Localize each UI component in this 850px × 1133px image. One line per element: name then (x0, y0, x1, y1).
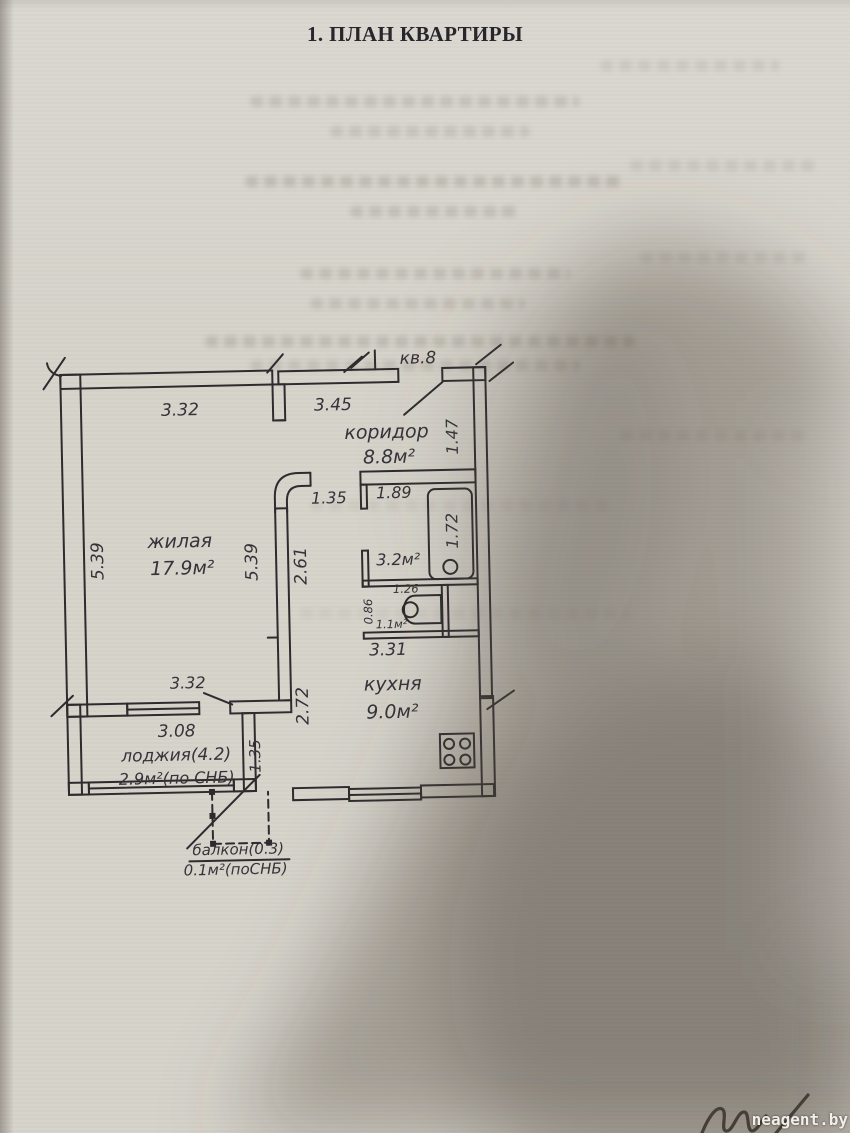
stove-burner (460, 738, 470, 748)
partition-wall (287, 486, 312, 512)
dim-kitchen-width: 3.31 (369, 640, 407, 661)
page-title: 1. ПЛАН КВАРТИРЫ (0, 22, 830, 47)
dim-wc-width: 1.26 (393, 582, 419, 597)
wall-segment (442, 585, 449, 637)
wall-break-mark (476, 345, 501, 365)
kitchen-window (349, 794, 421, 796)
dim-bath-depth: 1.72 (442, 513, 462, 549)
wall-segment (67, 705, 82, 795)
stove-burner (444, 755, 454, 765)
room-balcony-area: 0.1м²(поСНБ) (183, 859, 287, 879)
loggia-dim-leader-line (204, 692, 232, 705)
room-balcony-name: балкон(0.3) (192, 839, 284, 859)
dim-loggia-width: 3.08 (158, 721, 196, 742)
partition-wall (275, 508, 291, 700)
room-living-name: жилая (146, 530, 212, 553)
wall-segment (60, 371, 272, 389)
dim-entry-depth: 1.47 (442, 418, 462, 455)
stove-burner (460, 754, 470, 764)
wall-segment (421, 784, 494, 798)
wall-break-mark (51, 696, 73, 716)
dim-loggia-depth: 1.35 (246, 739, 265, 773)
entry-vent-symbol (351, 353, 369, 368)
room-loggia-area: 2.9м²(по СНБ) (119, 767, 235, 788)
dim-living-right: 5.39 (242, 543, 263, 581)
bathtub-drain (443, 560, 457, 574)
wall-segment (278, 369, 398, 385)
dim-wc-depth: 0.86 (361, 599, 376, 625)
room-kitchen-name: кухня (364, 672, 422, 695)
wall-break-mark (267, 354, 283, 372)
living-door-jamb (272, 384, 285, 420)
dim-partition: 2.61 (291, 547, 312, 585)
dim-loggia-wall: 3.32 (170, 673, 206, 693)
room-wc-area: 1.1м² (376, 617, 408, 632)
entry-door-leaf (403, 382, 443, 415)
wall-segment (230, 700, 291, 713)
balcony-dashed-edge (212, 791, 269, 844)
toilet (404, 595, 442, 624)
wall-segment (293, 787, 349, 800)
dim-bath-width: 1.89 (376, 483, 412, 503)
room-kitchen-area: 9.0м² (366, 701, 419, 724)
room-loggia-name: лоджия(4.2) (120, 744, 231, 766)
watermark: neagent.by (752, 1110, 848, 1129)
balcony-corner-dot (210, 790, 214, 794)
room-living-area: 17.9м² (150, 557, 215, 580)
wall-segment (364, 630, 479, 638)
room-hall-area: 8.8м² (363, 446, 416, 469)
dim-living-left: 5.39 (88, 542, 109, 580)
wall-segment (69, 782, 89, 794)
balcony-corner-dot (210, 814, 214, 818)
bath-door-jamb (361, 485, 368, 509)
dim-hall-passage: 1.35 (311, 488, 347, 508)
wall-segment (67, 704, 127, 717)
stove-burner (444, 739, 454, 749)
wall-segment (480, 696, 495, 796)
photographed-floor-plan-page: { "document": { "title": "1. ПЛАН КВАРТИ… (0, 0, 850, 1133)
room-bath-area: 3.2м² (376, 549, 421, 569)
living-loggia-window (127, 708, 199, 710)
dim-living-top: 3.32 (161, 400, 199, 421)
dim-hall-top: 3.45 (314, 395, 352, 416)
dim-kitchen-depth: 2.72 (293, 687, 314, 725)
partition-wall (274, 473, 311, 513)
walls (60, 366, 495, 805)
fixtures (400, 488, 477, 768)
floor-plan-drawing: кв.8 3.32 3.45 коридор 8.8м² 1.47 1.35 1… (0, 0, 850, 1133)
wall-break-mark (489, 362, 513, 380)
wall-segment (473, 367, 492, 698)
wall-segment (60, 375, 87, 717)
room-hall-name: коридор (344, 420, 429, 444)
wall-segment (442, 367, 485, 381)
apartment-number-label: кв.8 (400, 348, 437, 369)
